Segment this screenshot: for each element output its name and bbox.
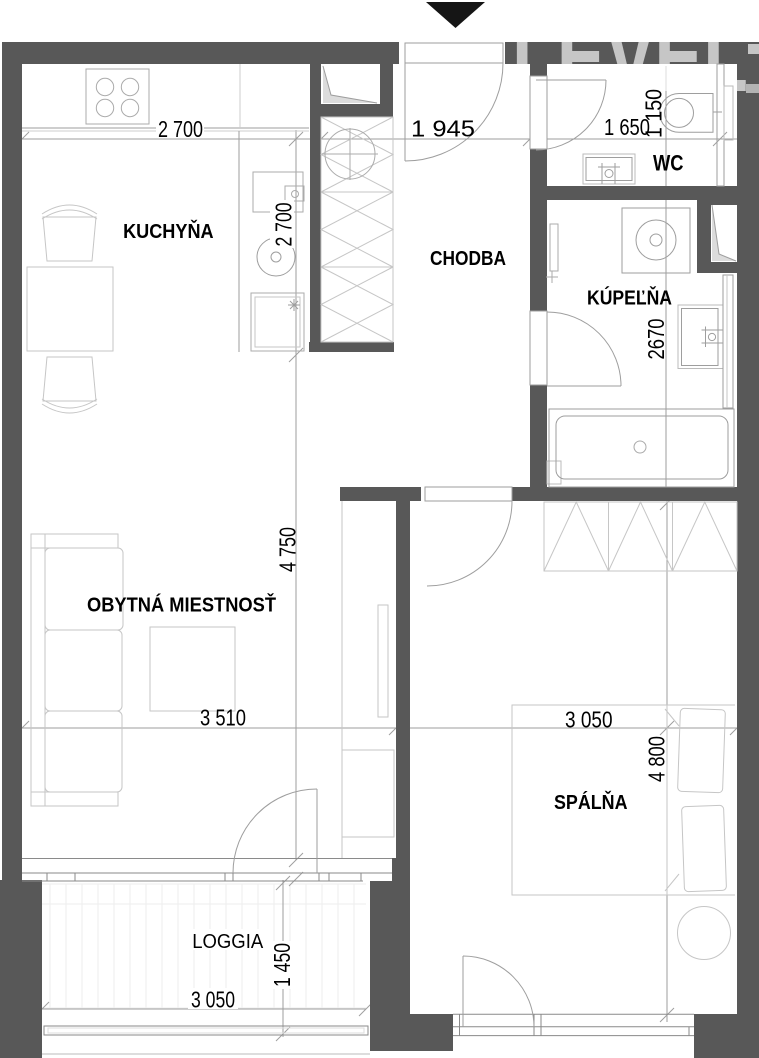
svg-text:3 050: 3 050: [565, 707, 613, 733]
svg-text:WC: WC: [653, 151, 684, 176]
svg-text:2670: 2670: [643, 319, 669, 360]
svg-text:KUCHYŇA: KUCHYŇA: [123, 219, 214, 243]
svg-text:LOGGIA: LOGGIA: [192, 930, 263, 953]
svg-text:3 510: 3 510: [200, 705, 246, 731]
svg-text:SPÁLŇA: SPÁLŇA: [554, 790, 628, 814]
svg-text:2 700: 2 700: [158, 116, 203, 142]
svg-text:1 150: 1 150: [641, 89, 667, 138]
svg-text:4 750: 4 750: [275, 527, 301, 572]
svg-text:KÚPEĽŇA: KÚPEĽŇA: [587, 286, 672, 310]
svg-text:3 050: 3 050: [191, 987, 235, 1013]
svg-text:1 450: 1 450: [269, 943, 295, 987]
svg-text:CHODBA: CHODBA: [430, 247, 506, 270]
svg-text:4 800: 4 800: [644, 736, 670, 782]
svg-text:1 945: 1 945: [411, 116, 475, 142]
svg-text:OBYTNÁ MIESTNOSŤ: OBYTNÁ MIESTNOSŤ: [87, 593, 276, 617]
svg-text:2 700: 2 700: [271, 203, 297, 247]
